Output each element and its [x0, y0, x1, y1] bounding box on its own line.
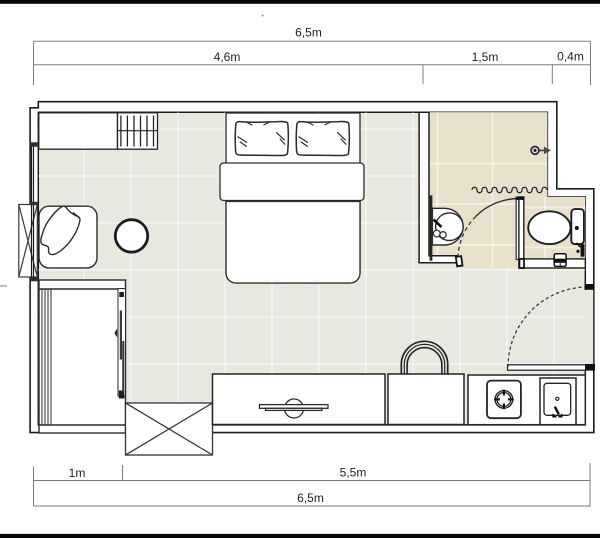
svg-text:0,4m: 0,4m	[557, 50, 584, 64]
svg-text:6,5m: 6,5m	[295, 25, 322, 39]
svg-text:1m: 1m	[69, 466, 86, 480]
svg-text:6,5m: 6,5m	[297, 491, 324, 505]
svg-text:4,6m: 4,6m	[214, 50, 241, 64]
svg-text:1,5m: 1,5m	[472, 50, 499, 64]
svg-text:5,5m: 5,5m	[340, 466, 367, 480]
